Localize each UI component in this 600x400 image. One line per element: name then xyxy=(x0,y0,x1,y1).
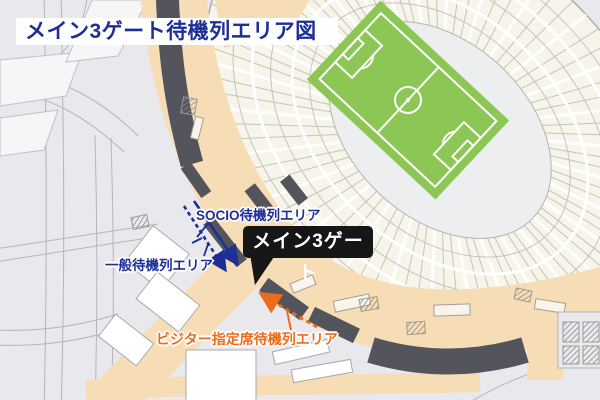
main-gate-callout: メイン3ゲート xyxy=(243,226,373,258)
page-title: メイン3ゲート待機列エリア図 xyxy=(16,18,338,45)
stadium-area-map: メイン3ゲート待機列エリア図 SOCIO待機列エリア 一般待機列エリア ビジター… xyxy=(0,0,600,400)
socio-area-label: SOCIO待機列エリア xyxy=(196,204,321,224)
visitor-area-label: ビジター指定席待機列エリア xyxy=(156,329,338,349)
parking-structure xyxy=(558,312,600,368)
general-area-label: 一般待機列エリア xyxy=(105,254,213,274)
